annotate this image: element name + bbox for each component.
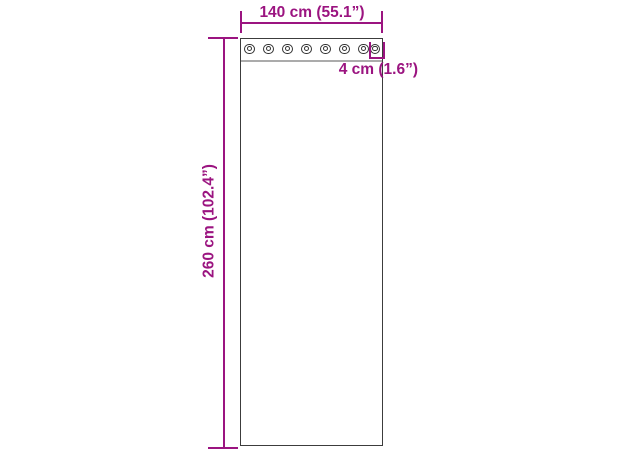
width-dimension-tick-left xyxy=(240,11,242,33)
height-dimension-label: 260 cm (102.4”) xyxy=(201,164,217,278)
grommet-icon xyxy=(301,44,312,55)
height-dimension-tick-bottom xyxy=(208,447,238,449)
grommet-icon xyxy=(339,44,350,55)
dimension-diagram: 140 cm (55.1”) 260 cm (102.4”) 4 cm (1.6… xyxy=(0,0,624,460)
height-dimension-line xyxy=(223,38,225,449)
grommet-hole xyxy=(266,46,271,51)
grommet-diameter-bracket xyxy=(369,42,385,59)
width-dimension-line xyxy=(241,22,383,24)
curtain-panel xyxy=(240,38,383,446)
grommet-diameter-label: 4 cm (1.6”) xyxy=(300,62,418,78)
grommet-icon xyxy=(244,44,255,55)
grommet-hole xyxy=(323,46,328,51)
grommet-hole xyxy=(342,46,347,51)
grommet-hole xyxy=(285,46,290,51)
grommet-hole xyxy=(304,46,309,51)
grommet-icon xyxy=(263,44,274,55)
grommet-icon xyxy=(358,44,369,55)
height-dimension-tick-top xyxy=(208,37,238,39)
grommet-hole xyxy=(361,46,366,51)
grommet-hole xyxy=(247,46,252,51)
width-dimension-tick-right xyxy=(381,11,383,33)
grommet-icon xyxy=(282,44,293,55)
width-dimension-label: 140 cm (55.1”) xyxy=(241,5,383,21)
grommet-icon xyxy=(320,44,331,55)
